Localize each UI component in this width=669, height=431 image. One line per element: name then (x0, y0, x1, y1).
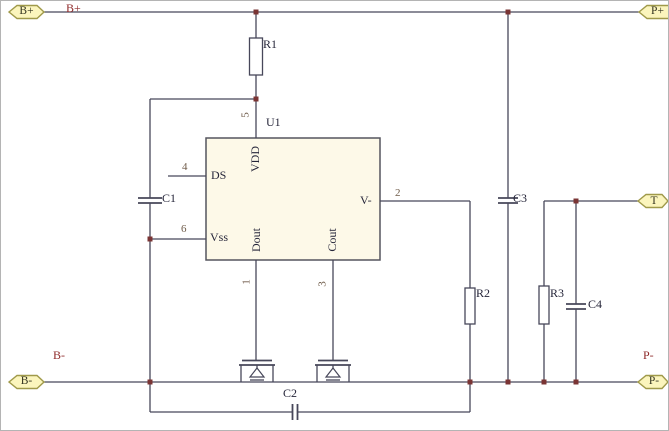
ic-u1-body (206, 138, 380, 260)
capacitor-c1-label: C1 (162, 192, 176, 204)
resistor-r3-label: R3 (550, 287, 564, 299)
port-pplus-label: P+ (645, 6, 669, 18)
capacitor-c3-label: C3 (513, 192, 527, 204)
mosfet-q1-symbol (239, 361, 275, 383)
ic-pin-name-ds: DS (211, 169, 226, 181)
capacitor-c2-symbol (150, 382, 470, 420)
port-bplus-label: B+ (11, 6, 42, 18)
port-bminus-label: B- (11, 376, 42, 388)
ic-pin-number-1: 1 (242, 279, 253, 285)
ic-pin-name-vdd: VDD (249, 146, 261, 172)
ic-pin-number-3: 3 (318, 281, 329, 287)
ic-pin-name-vminus: V- (360, 194, 372, 206)
resistor-r1-label: R1 (263, 38, 277, 50)
net-label-pminus: P- (643, 349, 654, 361)
capacitor-c2-label: C2 (283, 387, 297, 399)
port-t-label: T (642, 196, 666, 208)
net-label-bminus: B- (53, 349, 65, 361)
ic-pin-name-dout: Dout (250, 228, 262, 252)
ic-pin-name-vss: Vss (210, 231, 228, 243)
ic-pin-number-6: 6 (181, 224, 187, 235)
resistor-r2-symbol (465, 201, 475, 382)
mosfet-q2-symbol (315, 361, 351, 383)
capacitor-c4-symbol (566, 201, 586, 382)
capacitor-c1-symbol (138, 198, 162, 203)
ic-u1-designator: U1 (266, 116, 281, 128)
wiring-layer (1, 1, 669, 431)
ic-pin-number-4: 4 (182, 162, 188, 173)
resistor-r1-symbol (250, 12, 263, 99)
resistor-r2-label: R2 (476, 287, 490, 299)
capacitor-c4-label: C4 (588, 298, 602, 310)
ic-pin-number-2: 2 (395, 188, 401, 199)
schematic-canvas: B+ P+ T B- P- B+ B- P- U1 VDD DS Vss Dou… (0, 0, 669, 431)
ic-pin-number-5: 5 (241, 112, 252, 118)
resistor-r3-symbol (539, 201, 549, 382)
port-pminus-label: P- (642, 376, 666, 388)
net-label-bplus: B+ (66, 2, 81, 14)
ic-pin-name-cout: Cout (326, 228, 338, 251)
